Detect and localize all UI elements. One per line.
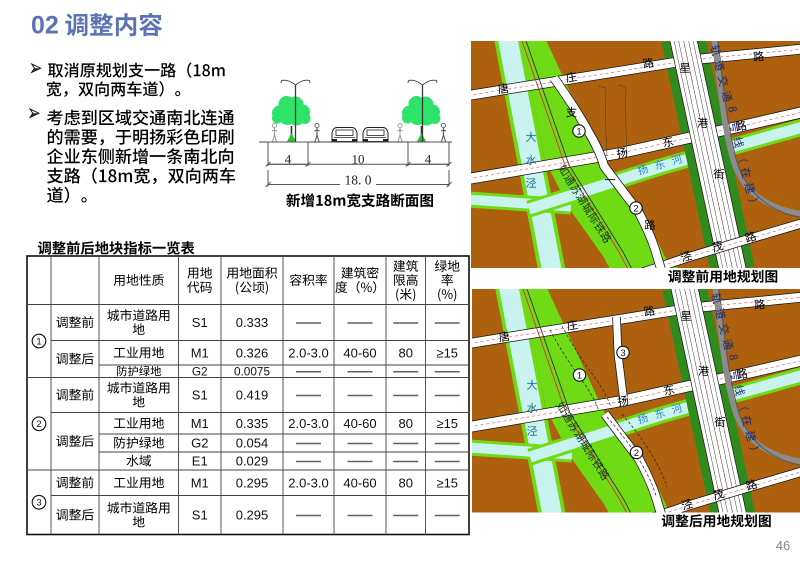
svg-text:46: 46 bbox=[776, 538, 790, 553]
svg-text:≥15: ≥15 bbox=[436, 416, 458, 431]
svg-text:4: 4 bbox=[285, 151, 292, 166]
svg-text:2.0-3.0: 2.0-3.0 bbox=[288, 475, 328, 490]
svg-text:≥15: ≥15 bbox=[436, 475, 458, 490]
svg-text:80: 80 bbox=[399, 475, 413, 490]
svg-text:2.0-3.0: 2.0-3.0 bbox=[288, 416, 328, 431]
svg-text:1: 1 bbox=[36, 336, 41, 347]
svg-text:1: 1 bbox=[577, 370, 582, 381]
svg-text:4: 4 bbox=[425, 151, 432, 166]
svg-text:80: 80 bbox=[399, 416, 413, 431]
svg-text:2: 2 bbox=[36, 419, 41, 430]
svg-text:1: 1 bbox=[576, 126, 581, 137]
svg-text:S1: S1 bbox=[192, 388, 208, 403]
svg-text:2: 2 bbox=[633, 203, 638, 214]
svg-text:02: 02 bbox=[31, 12, 59, 40]
svg-text:3: 3 bbox=[36, 498, 41, 509]
svg-text:3: 3 bbox=[620, 348, 625, 359]
svg-text:M1: M1 bbox=[191, 416, 209, 431]
svg-text:≥15: ≥15 bbox=[436, 345, 458, 360]
svg-text:0.295: 0.295 bbox=[236, 475, 269, 490]
svg-text:G2: G2 bbox=[192, 364, 208, 378]
svg-text:40-60: 40-60 bbox=[343, 416, 376, 431]
svg-text:S1: S1 bbox=[192, 508, 208, 523]
svg-text:2.0-3.0: 2.0-3.0 bbox=[288, 345, 328, 360]
svg-text:40-60: 40-60 bbox=[343, 475, 376, 490]
svg-text:18. 0: 18. 0 bbox=[345, 172, 372, 187]
svg-text:0.326: 0.326 bbox=[236, 345, 269, 360]
svg-text:M1: M1 bbox=[191, 345, 209, 360]
svg-text:0.0075: 0.0075 bbox=[234, 364, 271, 378]
svg-text:0.335: 0.335 bbox=[236, 416, 269, 431]
svg-text:0.419: 0.419 bbox=[236, 388, 269, 403]
svg-text:10: 10 bbox=[352, 151, 365, 166]
svg-text:S1: S1 bbox=[192, 315, 208, 330]
svg-text:M1: M1 bbox=[191, 475, 209, 490]
svg-text:80: 80 bbox=[399, 345, 413, 360]
svg-text:0.333: 0.333 bbox=[236, 315, 269, 330]
svg-text:0.295: 0.295 bbox=[236, 508, 269, 523]
svg-text:0.054: 0.054 bbox=[236, 436, 269, 451]
svg-text:E1: E1 bbox=[192, 454, 208, 469]
svg-text:0.029: 0.029 bbox=[236, 454, 269, 469]
svg-text:G2: G2 bbox=[191, 436, 208, 451]
svg-text:40-60: 40-60 bbox=[343, 345, 376, 360]
svg-text:2: 2 bbox=[634, 448, 639, 459]
